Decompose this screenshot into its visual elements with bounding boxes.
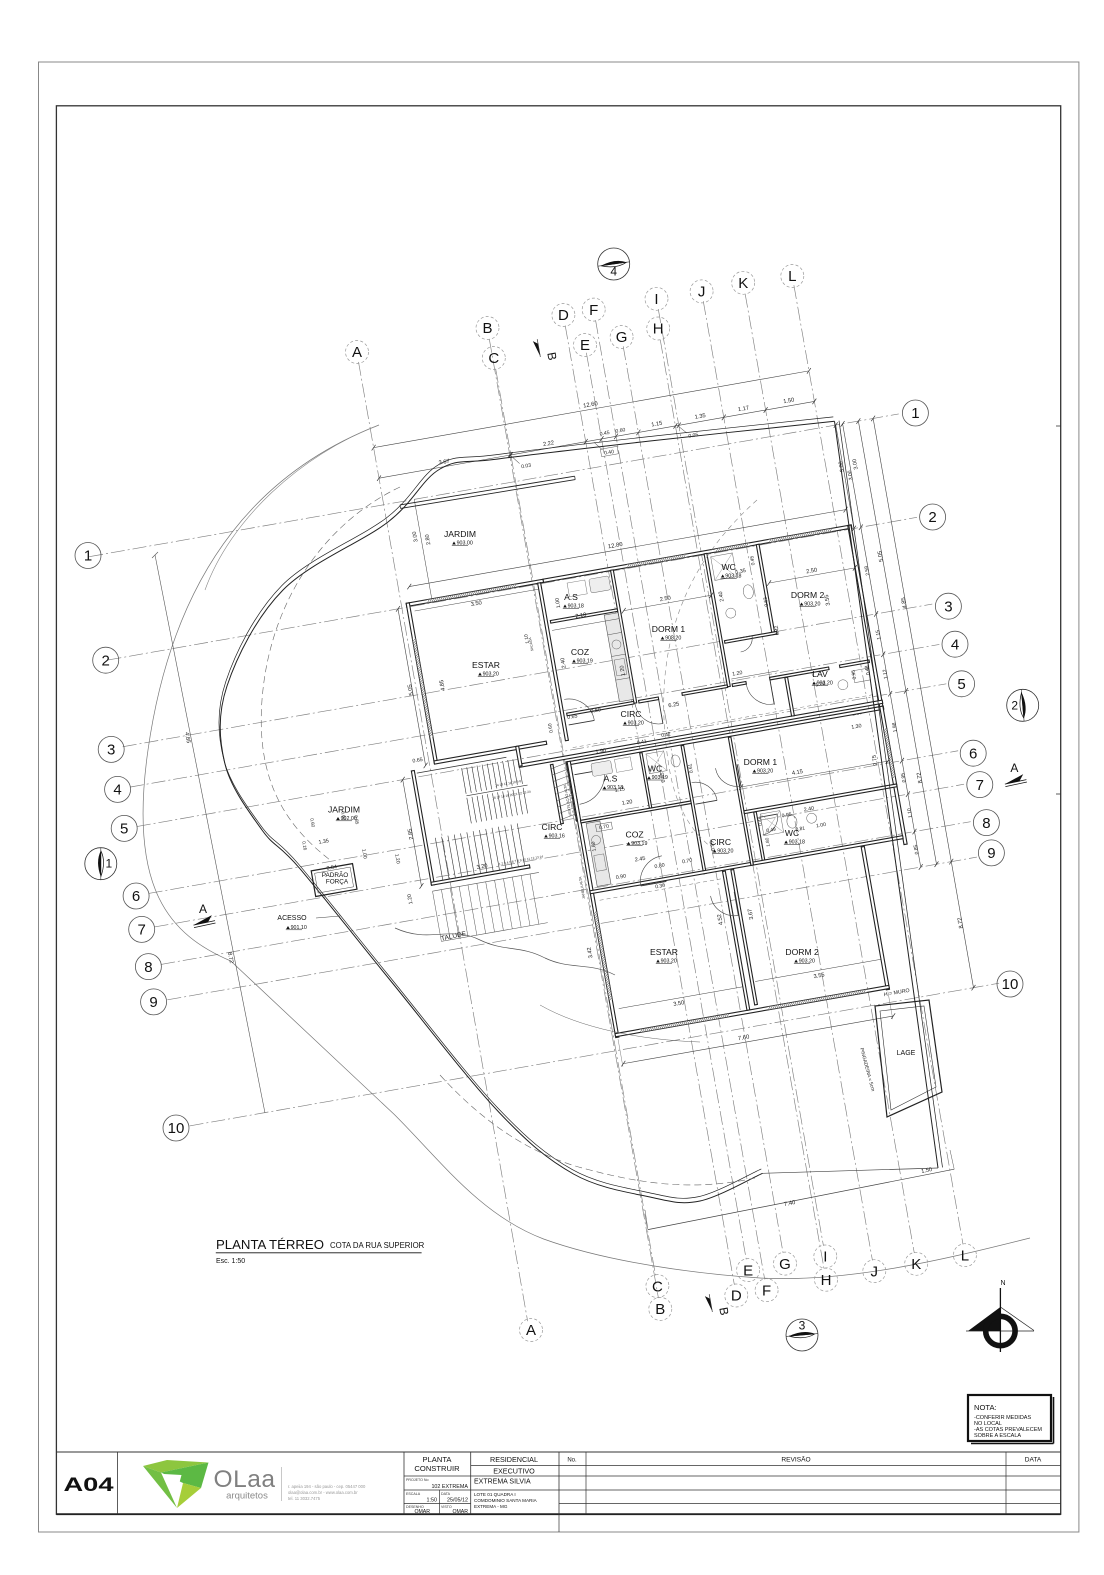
svg-text:7: 7 bbox=[138, 922, 146, 939]
svg-text:J: J bbox=[871, 1263, 879, 1280]
svg-text:903.16: 903.16 bbox=[549, 834, 565, 840]
svg-text:CIRC: CIRC bbox=[710, 837, 731, 847]
svg-text:1:50: 1:50 bbox=[427, 1498, 438, 1504]
svg-text:No.: No. bbox=[567, 1458, 577, 1464]
svg-text:25/05/12: 25/05/12 bbox=[447, 1498, 468, 1504]
svg-text:903.18: 903.18 bbox=[607, 785, 623, 791]
svg-text:D: D bbox=[558, 307, 569, 324]
svg-text:A: A bbox=[526, 1322, 536, 1339]
svg-text:H: H bbox=[653, 321, 664, 338]
svg-text:1: 1 bbox=[84, 548, 92, 565]
svg-text:903.20: 903.20 bbox=[799, 959, 815, 965]
svg-text:2: 2 bbox=[102, 652, 110, 669]
svg-text:FORÇA: FORÇA bbox=[326, 879, 349, 886]
svg-text:2: 2 bbox=[928, 509, 936, 526]
svg-text:H: H bbox=[821, 1272, 832, 1289]
svg-text:9: 9 bbox=[987, 845, 995, 862]
svg-text:A.S: A.S bbox=[604, 774, 618, 784]
svg-text:L: L bbox=[961, 1247, 969, 1264]
svg-text:F: F bbox=[762, 1282, 771, 1299]
svg-text:CONSTRUIR: CONSTRUIR bbox=[414, 1464, 460, 1473]
svg-text:ESCALA: ESCALA bbox=[406, 1492, 421, 1496]
svg-text:903.20: 903.20 bbox=[665, 636, 681, 642]
svg-text:tel. 11 3032.7475: tel. 11 3032.7475 bbox=[288, 1496, 321, 1501]
svg-text:ESTAR: ESTAR bbox=[472, 660, 500, 670]
svg-text:DATA: DATA bbox=[1025, 1457, 1042, 1464]
svg-text:5: 5 bbox=[957, 676, 965, 693]
svg-text:EXECUTIVO: EXECUTIVO bbox=[493, 1467, 535, 1476]
svg-text:6: 6 bbox=[132, 888, 140, 905]
svg-text:PROJETO No: PROJETO No bbox=[406, 1478, 429, 1482]
svg-text:VISTO: VISTO bbox=[441, 1505, 452, 1509]
svg-text:10: 10 bbox=[1002, 976, 1019, 993]
svg-text:A: A bbox=[352, 344, 362, 361]
svg-text:B: B bbox=[655, 1301, 665, 1318]
svg-text:N: N bbox=[1000, 1280, 1005, 1287]
svg-text:J: J bbox=[698, 284, 706, 301]
svg-text:arquitetos: arquitetos bbox=[226, 1491, 268, 1502]
svg-text:4: 4 bbox=[951, 636, 959, 653]
svg-text:DORM 1: DORM 1 bbox=[744, 757, 778, 767]
svg-text:D: D bbox=[731, 1288, 742, 1305]
svg-text:3: 3 bbox=[107, 742, 115, 759]
svg-text:903.00: 903.00 bbox=[457, 541, 473, 547]
svg-text:K: K bbox=[738, 275, 748, 292]
svg-text:903.20: 903.20 bbox=[628, 721, 644, 727]
svg-text:903.20: 903.20 bbox=[483, 672, 499, 678]
svg-text:903.19: 903.19 bbox=[652, 775, 668, 781]
svg-text:DORM 1: DORM 1 bbox=[652, 624, 686, 634]
svg-text:OMAR: OMAR bbox=[452, 1509, 468, 1515]
svg-text:OMAR: OMAR bbox=[414, 1509, 430, 1515]
svg-text:Esc. 1:50: Esc. 1:50 bbox=[216, 1258, 245, 1265]
svg-text:1: 1 bbox=[105, 857, 112, 871]
svg-text:102 EXTREMA: 102 EXTREMA bbox=[431, 1484, 468, 1490]
svg-text:4: 4 bbox=[113, 782, 121, 799]
svg-text:WC: WC bbox=[785, 828, 799, 838]
svg-text:903.18: 903.18 bbox=[725, 574, 741, 580]
svg-text:I: I bbox=[823, 1249, 827, 1266]
svg-text:JARDIM: JARDIM bbox=[444, 529, 476, 539]
svg-text:LAGE: LAGE bbox=[897, 1050, 916, 1057]
svg-text:A.S: A.S bbox=[564, 592, 578, 602]
svg-text:PLANTA: PLANTA bbox=[423, 1455, 453, 1464]
svg-text:olaa@olaa.com.br - www.olaa.co: olaa@olaa.com.br - www.olaa.com.br bbox=[288, 1490, 358, 1495]
svg-text:ACESSO: ACESSO bbox=[277, 915, 307, 922]
svg-text:K: K bbox=[911, 1256, 921, 1273]
svg-text:G: G bbox=[779, 1256, 791, 1273]
svg-text:9: 9 bbox=[149, 994, 157, 1011]
svg-text:A04: A04 bbox=[64, 1474, 114, 1496]
svg-text:C: C bbox=[652, 1278, 663, 1295]
svg-text:8: 8 bbox=[982, 815, 990, 832]
svg-text:COZ: COZ bbox=[571, 647, 589, 657]
svg-text:10: 10 bbox=[168, 1120, 185, 1137]
svg-text:SOBRE A ESCALA: SOBRE A ESCALA bbox=[974, 1433, 1021, 1439]
svg-text:PLANTA TÉRREO: PLANTA TÉRREO bbox=[216, 1237, 324, 1252]
svg-text:5: 5 bbox=[120, 821, 128, 838]
svg-text:EXTREMA SILVIA: EXTREMA SILVIA bbox=[474, 1479, 531, 1486]
svg-text:ESTAR: ESTAR bbox=[650, 947, 678, 957]
svg-text:EXTREMA - MG: EXTREMA - MG bbox=[474, 1504, 508, 1509]
svg-text:NOTA:: NOTA: bbox=[974, 1403, 997, 1412]
svg-text:E: E bbox=[580, 337, 590, 354]
svg-text:DORM 2: DORM 2 bbox=[791, 590, 825, 600]
svg-text:LOTE 01 QUADRA I: LOTE 01 QUADRA I bbox=[474, 1492, 516, 1497]
svg-text:1: 1 bbox=[911, 405, 919, 422]
svg-text:G: G bbox=[616, 329, 628, 346]
svg-text:903.19: 903.19 bbox=[577, 659, 593, 665]
svg-text:E: E bbox=[743, 1262, 753, 1279]
svg-text:A: A bbox=[199, 902, 207, 916]
svg-text:JARDIM: JARDIM bbox=[328, 805, 360, 815]
svg-text:L: L bbox=[788, 268, 796, 285]
svg-text:8: 8 bbox=[144, 959, 152, 976]
svg-text:903.19: 903.19 bbox=[631, 841, 647, 847]
svg-text:F: F bbox=[589, 302, 598, 319]
svg-text:C: C bbox=[488, 350, 499, 367]
svg-text:COZ: COZ bbox=[626, 829, 644, 839]
svg-text:7: 7 bbox=[976, 777, 984, 794]
svg-text:COMDOMINIO SANTA MARIA: COMDOMINIO SANTA MARIA bbox=[474, 1498, 538, 1503]
svg-text:3: 3 bbox=[799, 1319, 806, 1333]
svg-text:OLaa: OLaa bbox=[214, 1466, 276, 1493]
svg-text:DORM 2: DORM 2 bbox=[785, 947, 819, 957]
svg-text:REVISÃO: REVISÃO bbox=[781, 1455, 810, 1464]
svg-text:6: 6 bbox=[969, 745, 977, 762]
svg-text:r. apeiia 194 - são paulo - ce: r. apeiia 194 - são paulo - cep. 05447 0… bbox=[288, 1484, 366, 1489]
svg-text:903.20: 903.20 bbox=[804, 602, 820, 608]
svg-text:COTA DA RUA SUPERIOR: COTA DA RUA SUPERIOR bbox=[330, 1241, 425, 1250]
svg-text:902.00: 902.00 bbox=[341, 816, 357, 822]
svg-text:903.18: 903.18 bbox=[789, 840, 805, 846]
svg-text:903.20: 903.20 bbox=[661, 959, 677, 965]
svg-text:LAV: LAV bbox=[812, 669, 828, 679]
svg-text:I: I bbox=[654, 291, 658, 308]
svg-text:3: 3 bbox=[944, 598, 952, 615]
svg-text:B: B bbox=[482, 320, 492, 337]
svg-text:903.20: 903.20 bbox=[717, 849, 733, 855]
svg-text:2: 2 bbox=[1011, 698, 1018, 712]
svg-text:903.20: 903.20 bbox=[817, 681, 833, 687]
svg-text:903.20: 903.20 bbox=[757, 769, 773, 775]
svg-text:903.18: 903.18 bbox=[568, 604, 584, 610]
svg-text:901.10: 901.10 bbox=[291, 925, 307, 931]
svg-text:WC: WC bbox=[722, 562, 736, 572]
svg-text:RESIDENCIAL: RESIDENCIAL bbox=[490, 1455, 538, 1464]
svg-text:WC: WC bbox=[648, 764, 662, 774]
svg-text:DATA: DATA bbox=[441, 1492, 451, 1496]
svg-text:A: A bbox=[1010, 761, 1018, 775]
svg-text:CIRC: CIRC bbox=[541, 822, 562, 832]
svg-text:CIRC: CIRC bbox=[620, 709, 641, 719]
